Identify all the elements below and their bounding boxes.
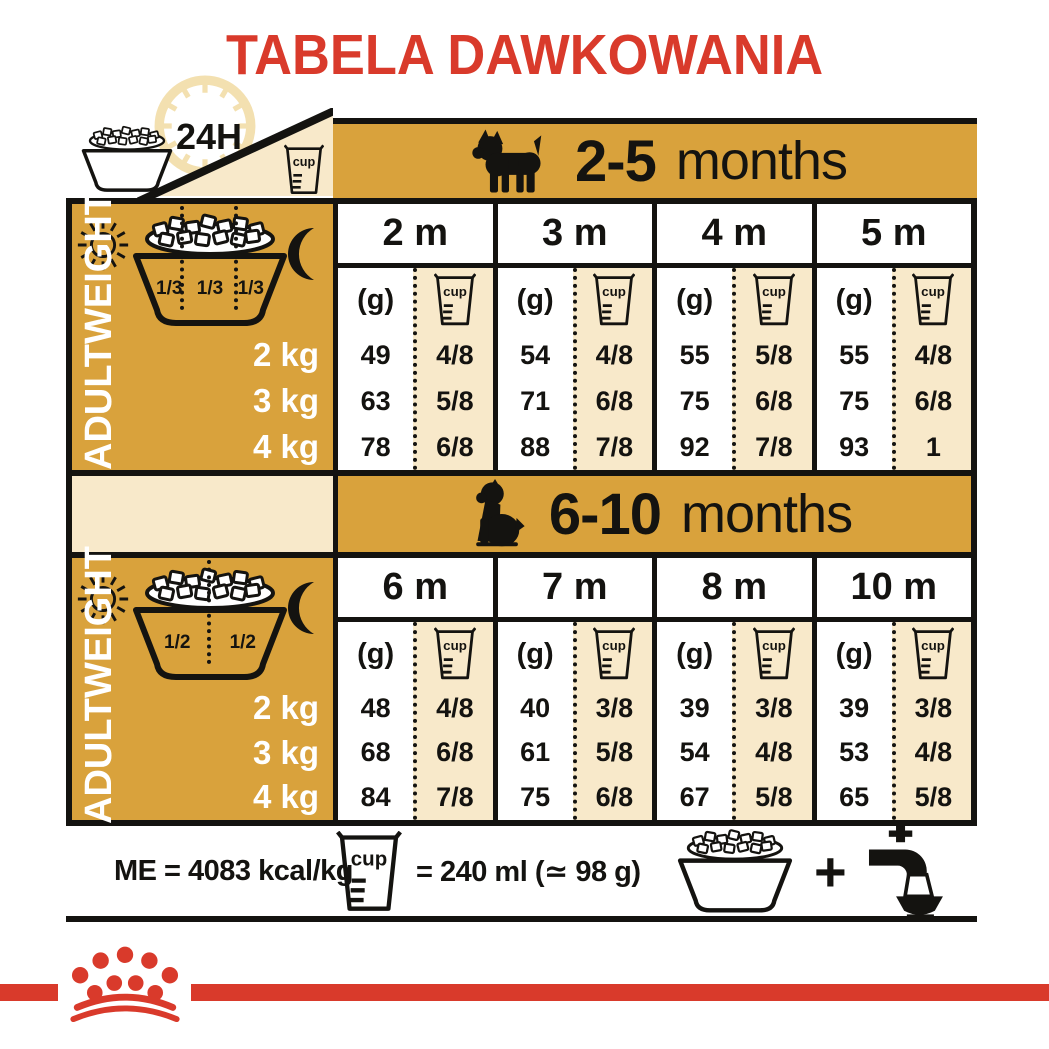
cup-value: 5/8 [596,737,634,768]
grams-value: 84 [361,782,391,813]
cup-value: 6/8 [596,386,634,417]
cup-value: 3/8 [915,693,953,724]
weight-row-label: 3 kg [253,378,319,424]
grams-value: 55 [839,340,869,371]
svg-text:cup: cup [762,284,786,299]
grams-value: 55 [680,340,710,371]
cup-value: 4/8 [436,340,474,371]
cup-value: 5/8 [755,340,793,371]
grams-value: 49 [361,340,391,371]
adult-weight-panel: 1/3 1/3 1/3 ADULTWEIGHT 2 kg 3 kg 4 kg [72,204,333,470]
cup-value: 7/8 [596,432,634,463]
month-column-4m: 4 m (g) 55 75 92 cup 5/8 6/8 7/8 [652,204,812,470]
month-header: 3 m [498,204,653,268]
grams-value: 71 [520,386,550,417]
svg-text:cup: cup [922,284,946,299]
svg-text:cup: cup [603,284,627,299]
footer-legend: ME = 4083 kcal/kg cup = 240 ml (≃ 98 g) … [66,826,977,922]
portion-fraction: 1/3 [156,278,182,300]
cup-value: 4/8 [755,737,793,768]
grams-unit-label: (g) [836,638,873,671]
svg-text:cup: cup [922,638,946,653]
svg-text:cup: cup [762,638,786,653]
svg-text:cup: cup [351,848,387,871]
adult-weight-label: ADULTWEIGHT [82,328,117,470]
portion-fraction: 1/3 [238,278,264,300]
grams-value: 54 [680,737,710,768]
grams-value: 93 [839,432,869,463]
cup-value: 5/8 [436,386,474,417]
cup-value: 3/8 [755,693,793,724]
cup-icon: cup [434,627,476,681]
month-column-7m: 7 m (g) 40 61 75 cup 3/8 5/8 6/8 [493,558,653,820]
grams-value: 75 [839,386,869,417]
cup-value: 5/8 [915,782,953,813]
portion-fraction: 1/2 [230,632,256,654]
moon-icon [284,226,324,282]
month-header: 10 m [817,558,972,622]
grams-value: 48 [361,693,391,724]
plus-icon: + [814,826,847,916]
grams-value: 61 [520,737,550,768]
month-column-3m: 3 m (g) 54 71 88 cup 4/8 6/8 7/8 [493,204,653,470]
age-word: months [681,483,852,545]
month-header: 7 m [498,558,653,622]
cup-icon: cup [593,627,635,681]
month-header: 8 m [657,558,812,622]
months-area: 6 m (g) 48 68 84 cup 4/8 6/8 7/8 [333,558,971,820]
daily-ration-bowl: 1/3 1/3 1/3 [130,206,290,332]
cup-value: 4/8 [915,340,953,371]
cup-value: 4/8 [436,693,474,724]
cup-icon: cup [912,627,954,681]
puppy-standing-icon [463,128,555,194]
cup-icon: cup [593,273,635,327]
grams-value: 63 [361,386,391,417]
weight-row-label: 2 kg [253,332,319,378]
brand-stripe [191,984,1049,1001]
cup-value: 6/8 [436,737,474,768]
cup-value: 7/8 [755,432,793,463]
grams-value: 39 [839,693,869,724]
water-tap-icon [854,826,948,918]
adult-weight-label: ADULTWEIGHT [82,682,117,824]
cup-value: 4/8 [596,340,634,371]
cup-value: 7/8 [436,782,474,813]
grams-value: 65 [839,782,869,813]
grams-unit-label: (g) [517,284,554,317]
grams-value: 75 [520,782,550,813]
svg-text:cup: cup [293,155,316,169]
month-header: 6 m [338,558,493,622]
cup-value: 3/8 [596,693,634,724]
grams-value: 53 [839,737,869,768]
cup-value: 4/8 [915,737,953,768]
royal-canin-crown-logo [62,946,188,1024]
spacer-cell [72,476,333,552]
feeding-guide: TABELA DAWKOWANIA 24H cup 2-5 months 1/ [0,0,1049,1049]
cup-icon: cup [330,831,408,913]
grams-unit-label: (g) [357,638,394,671]
feeding-table-2-5-months: 1/3 1/3 1/3 ADULTWEIGHT 2 kg 3 kg 4 kg 2… [66,198,977,476]
cup-icon: cup [753,627,795,681]
cup-icon: cup [753,273,795,327]
bowl-thirds-icon [130,212,290,328]
moon-icon [284,580,324,636]
svg-text:cup: cup [443,284,467,299]
age-range: 2-5 [575,128,656,195]
month-column-8m: 8 m (g) 39 54 67 cup 3/8 4/8 5/8 [652,558,812,820]
cup-icon: cup [434,273,476,327]
svg-text:cup: cup [443,638,467,653]
portion-fraction: 1/2 [164,632,190,654]
brand-stripe [0,984,58,1001]
cup-icon: cup [912,273,954,327]
cup-value: 5/8 [755,782,793,813]
puppy-sitting-icon [457,479,529,549]
grams-value: 39 [680,693,710,724]
grams-value: 88 [520,432,550,463]
grams-unit-label: (g) [676,284,713,317]
month-column-6m: 6 m (g) 48 68 84 cup 4/8 6/8 7/8 [338,558,493,820]
metabolizable-energy-label: ME = 4083 kcal/kg [114,826,353,916]
weight-row-label: 4 kg [253,424,319,470]
grams-unit-label: (g) [517,638,554,671]
month-column-10m: 10 m (g) 39 53 65 cup 3/8 4/8 5/8 [812,558,972,820]
cup-value: 6/8 [755,386,793,417]
grams-unit-label: (g) [357,284,394,317]
cup-value: 6/8 [915,386,953,417]
age-header-2-5-months: 2-5 months [333,118,977,198]
grams-value: 78 [361,432,391,463]
age-header-6-10-months: 6-10 months [333,476,971,552]
grams-value: 40 [520,693,550,724]
weight-row-label: 4 kg [253,775,319,819]
weight-row-label: 2 kg [253,686,319,730]
grams-unit-label: (g) [676,638,713,671]
months-area: 2 m (g) 49 63 78 cup 4/8 5/8 6/8 [333,204,971,470]
mid-band: 6-10 months [66,476,977,552]
month-column-2m: 2 m (g) 49 63 78 cup 4/8 5/8 6/8 [338,204,493,470]
svg-text:cup: cup [603,638,627,653]
grams-value: 67 [680,782,710,813]
weight-row-label: 3 kg [253,731,319,775]
food-bowl-icon [656,828,814,914]
portion-fraction: 1/3 [197,278,223,300]
month-header: 4 m [657,204,812,268]
cup-value: 1 [926,432,941,463]
cup-equivalence-label: = 240 ml (≃ 98 g) [416,826,641,916]
grams-value: 92 [680,432,710,463]
month-header: 2 m [338,204,493,268]
age-range: 6-10 [549,481,661,548]
grams-unit-label: (g) [836,284,873,317]
grams-value: 68 [361,737,391,768]
month-column-5m: 5 m (g) 55 75 93 cup 4/8 6/8 1 [812,204,972,470]
age-word: months [676,130,847,192]
cup-value: 6/8 [596,782,634,813]
cup-value: 6/8 [436,432,474,463]
cup-icon: cup [284,144,324,196]
month-header: 5 m [817,204,972,268]
grams-value: 75 [680,386,710,417]
daily-ration-bowl: 1/2 1/2 [130,560,290,686]
grams-value: 54 [520,340,550,371]
adult-weight-panel: 1/2 1/2 ADULTWEIGHT 2 kg 3 kg 4 kg [72,558,333,820]
feeding-table-6-10-months: 1/2 1/2 ADULTWEIGHT 2 kg 3 kg 4 kg 6 m (… [66,552,977,826]
